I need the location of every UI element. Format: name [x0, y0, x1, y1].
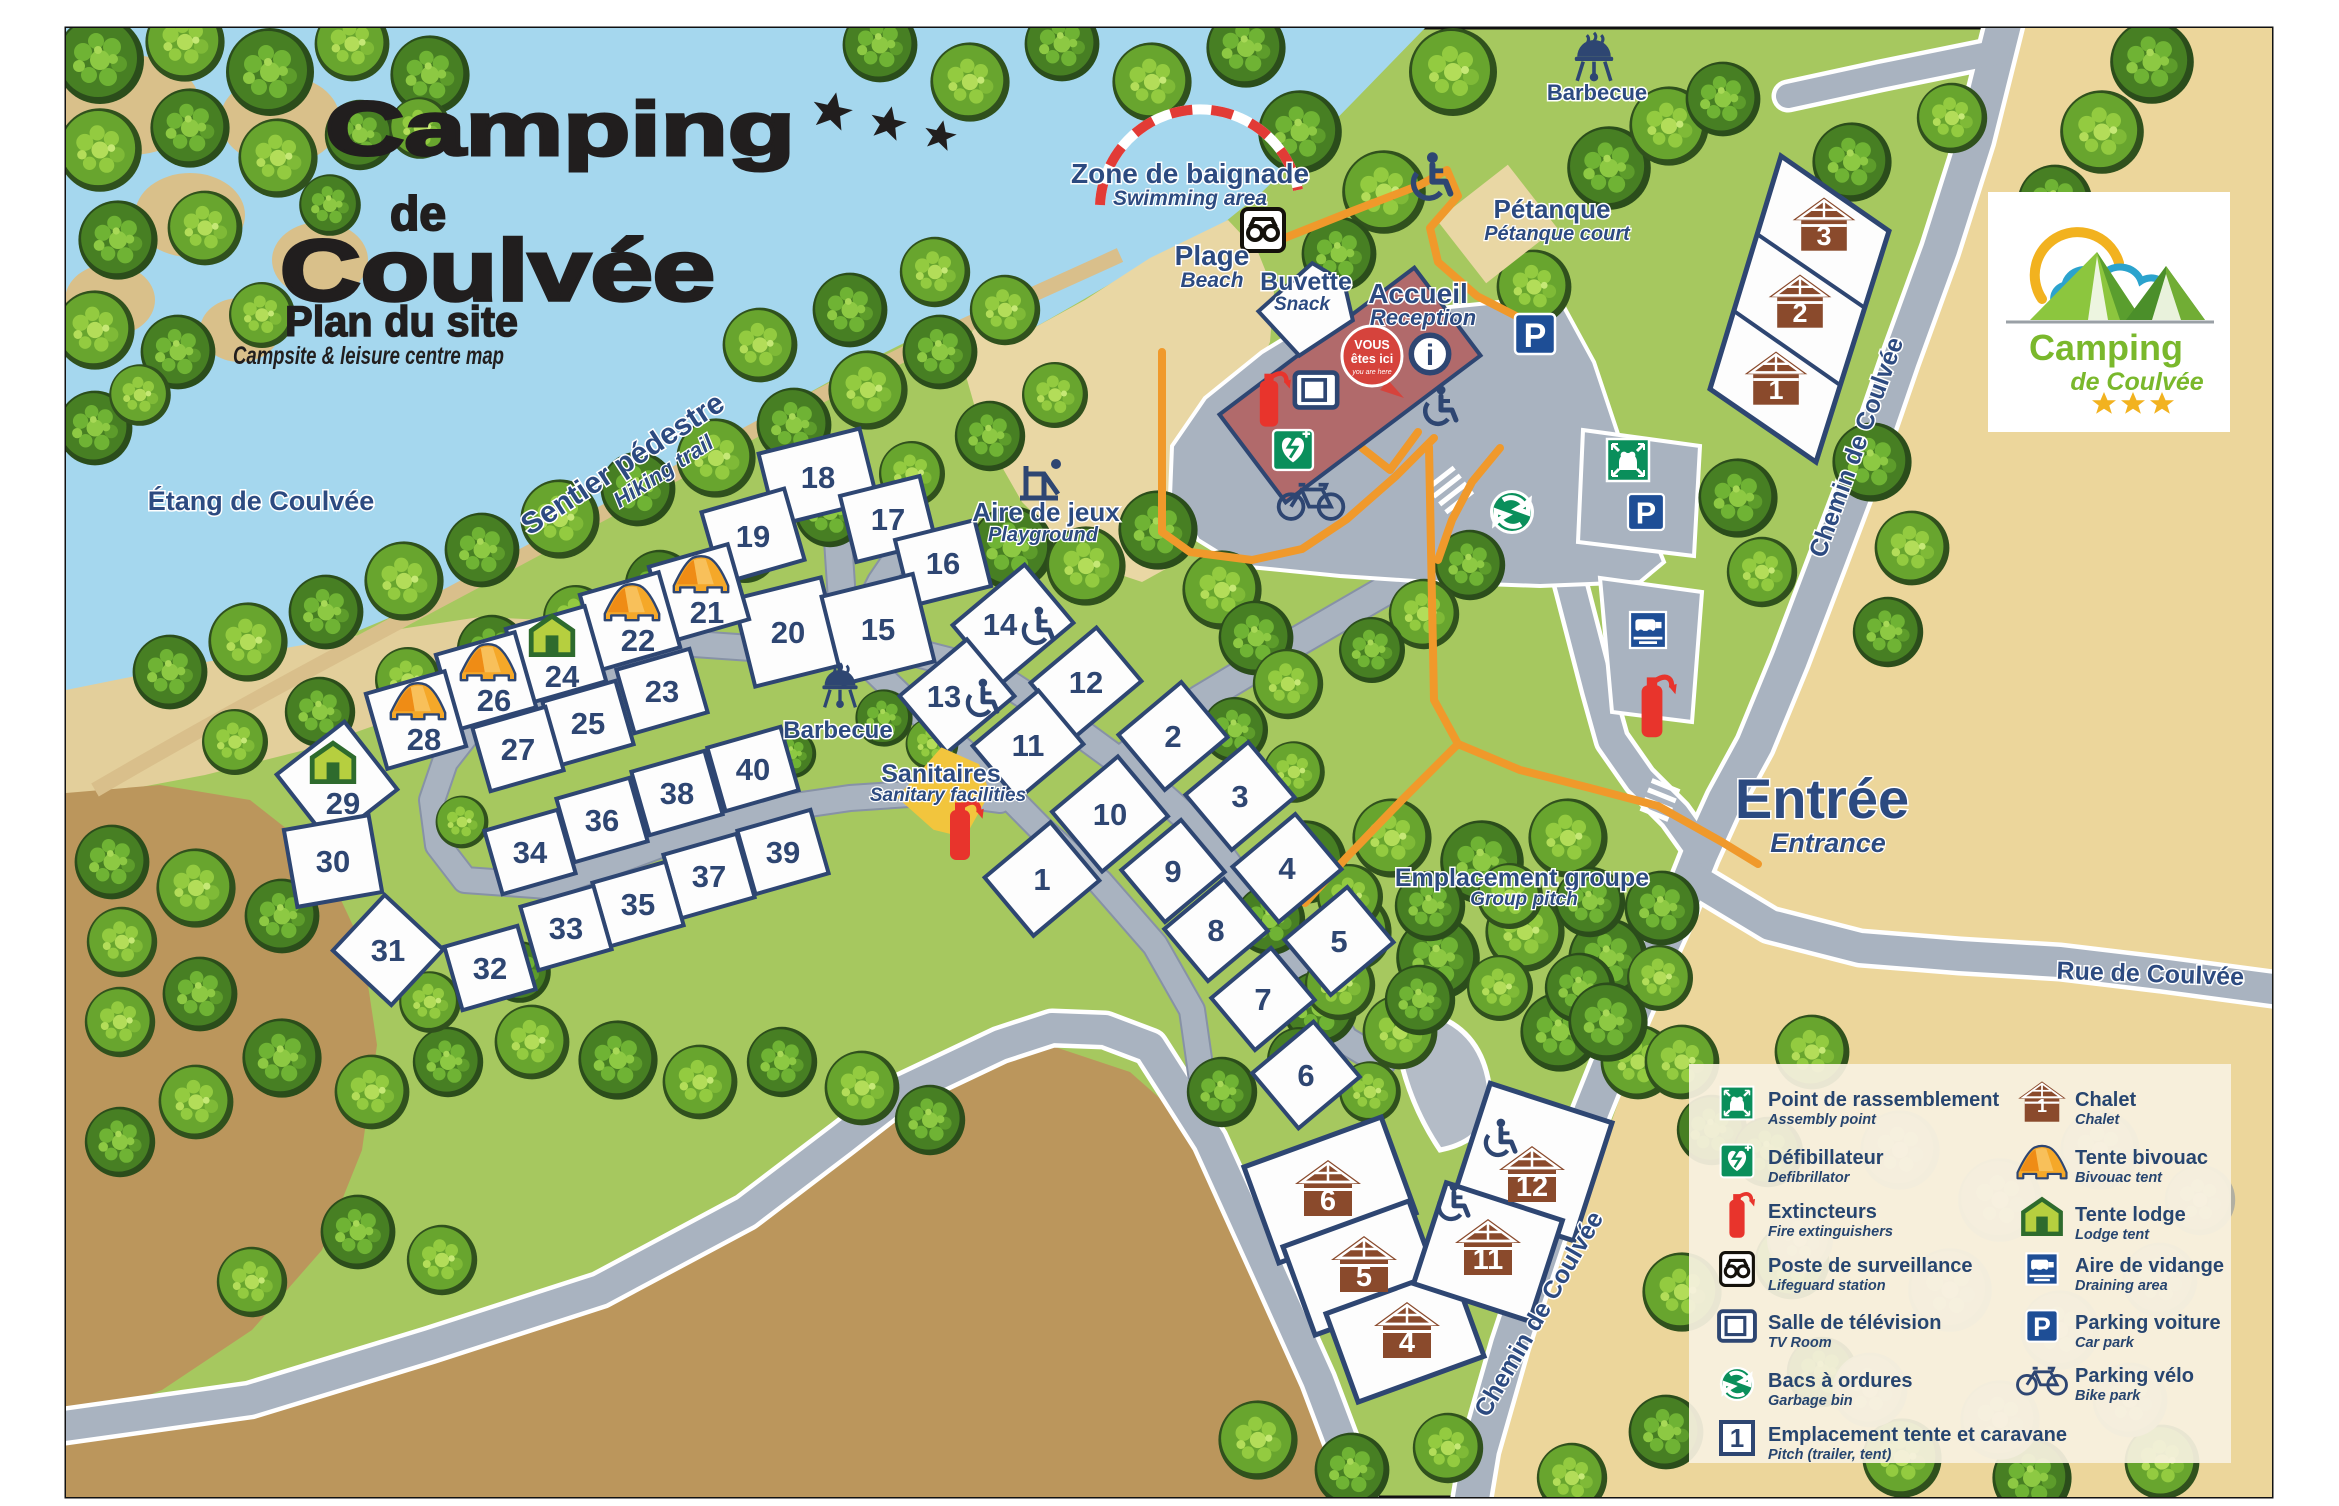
svg-text:Aire de jeux: Aire de jeux — [972, 497, 1120, 527]
svg-text:6: 6 — [1320, 1185, 1336, 1217]
svg-text:Poste de surveillance: Poste de surveillance — [1768, 1255, 1973, 1277]
svg-text:Buvette: Buvette — [1260, 268, 1352, 296]
svg-text:Sanitaires: Sanitaires — [881, 760, 1001, 788]
svg-text:Emplacement groupe: Emplacement groupe — [1395, 864, 1649, 892]
svg-text:Bike park: Bike park — [2075, 1388, 2141, 1404]
svg-text:14: 14 — [983, 607, 1018, 642]
svg-text:Bivouac tent: Bivouac tent — [2075, 1170, 2163, 1186]
svg-text:Entrée: Entrée — [1735, 767, 1909, 830]
svg-text:de Coulvée: de Coulvée — [2070, 368, 2203, 396]
svg-text:Swimming area: Swimming area — [1113, 187, 1267, 210]
svg-text:Aire de vidange: Aire de vidange — [2075, 1255, 2224, 1277]
svg-text:27: 27 — [501, 732, 535, 767]
svg-text:Tente bivouac: Tente bivouac — [2075, 1147, 2208, 1169]
svg-text:Garbage bin: Garbage bin — [1768, 1393, 1853, 1409]
svg-text:28: 28 — [407, 722, 441, 757]
svg-text:TV Room: TV Room — [1768, 1335, 1832, 1351]
svg-text:Lifeguard station: Lifeguard station — [1768, 1278, 1886, 1294]
svg-text:21: 21 — [690, 595, 724, 630]
svg-text:Pitch (trailer, tent): Pitch (trailer, tent) — [1768, 1447, 1891, 1463]
svg-text:32: 32 — [473, 951, 507, 986]
svg-text:1: 1 — [1033, 862, 1050, 897]
svg-text:Plage: Plage — [1175, 240, 1250, 271]
svg-text:VOUS: VOUS — [1354, 338, 1389, 352]
svg-text:10: 10 — [1093, 797, 1127, 832]
svg-text:Bacs à ordures: Bacs à ordures — [1768, 1370, 1913, 1392]
svg-text:2: 2 — [1164, 719, 1181, 754]
svg-text:37: 37 — [692, 859, 726, 894]
svg-text:30: 30 — [316, 844, 350, 879]
svg-text:40: 40 — [736, 752, 770, 787]
svg-text:25: 25 — [571, 706, 605, 741]
svg-text:Defibrillator: Defibrillator — [1768, 1170, 1851, 1186]
svg-text:6: 6 — [1297, 1058, 1314, 1093]
svg-text:15: 15 — [861, 612, 895, 647]
svg-text:Parking voiture: Parking voiture — [2075, 1312, 2221, 1334]
svg-text:2: 2 — [1792, 298, 1807, 328]
svg-text:5: 5 — [1330, 924, 1347, 959]
svg-text:Emplacement tente et caravane: Emplacement tente et caravane — [1768, 1424, 2067, 1446]
svg-text:11: 11 — [1473, 1244, 1504, 1276]
svg-text:31: 31 — [371, 933, 405, 968]
svg-text:Plan du site: Plan du site — [285, 298, 518, 346]
svg-text:you are here: you are here — [1351, 369, 1391, 376]
svg-text:3: 3 — [1816, 221, 1831, 251]
svg-text:4: 4 — [1278, 851, 1296, 886]
svg-text:16: 16 — [926, 546, 960, 581]
svg-text:Pétanque: Pétanque — [1493, 194, 1610, 224]
svg-text:Chalet: Chalet — [2075, 1089, 2136, 1111]
svg-text:Chalet: Chalet — [2075, 1112, 2120, 1128]
svg-text:Playground: Playground — [988, 524, 1099, 546]
svg-text:39: 39 — [766, 835, 800, 870]
svg-text:33: 33 — [549, 911, 583, 946]
svg-text:24: 24 — [545, 659, 580, 694]
svg-text:38: 38 — [660, 776, 694, 811]
svg-text:36: 36 — [585, 803, 619, 838]
svg-text:35: 35 — [621, 887, 655, 922]
svg-text:Lodge tent: Lodge tent — [2075, 1227, 2150, 1243]
svg-text:Point de rassemblement: Point de rassemblement — [1768, 1089, 2000, 1111]
svg-text:Tente lodge: Tente lodge — [2075, 1204, 2186, 1226]
svg-text:22: 22 — [621, 623, 655, 658]
svg-text:3: 3 — [1231, 779, 1248, 814]
svg-text:26: 26 — [477, 683, 511, 718]
svg-text:9: 9 — [1164, 854, 1181, 889]
svg-text:34: 34 — [513, 835, 548, 870]
svg-text:Pétanque court: Pétanque court — [1484, 223, 1631, 245]
svg-text:13: 13 — [927, 679, 961, 714]
svg-text:18: 18 — [801, 460, 835, 495]
svg-text:Extincteurs: Extincteurs — [1768, 1201, 1877, 1223]
svg-text:Car park: Car park — [2075, 1335, 2135, 1351]
svg-text:1: 1 — [2037, 1096, 2047, 1116]
svg-text:Barbecue: Barbecue — [783, 717, 892, 744]
svg-text:Zone de baignade: Zone de baignade — [1071, 158, 1309, 189]
svg-text:1: 1 — [1768, 375, 1783, 405]
svg-text:1: 1 — [1730, 1423, 1744, 1453]
svg-text:Reception: Reception — [1370, 305, 1476, 330]
svg-text:17: 17 — [871, 502, 905, 537]
svg-text:23: 23 — [645, 674, 679, 709]
svg-text:Snack: Snack — [1274, 294, 1331, 315]
svg-text:5: 5 — [1356, 1261, 1372, 1293]
svg-text:Étang de Coulvée: Étang de Coulvée — [148, 485, 375, 516]
svg-text:12: 12 — [1069, 665, 1103, 700]
svg-text:Beach: Beach — [1180, 269, 1243, 292]
svg-text:Fire extinguishers: Fire extinguishers — [1768, 1224, 1893, 1240]
svg-text:Campsite & leisure centre map: Campsite & leisure centre map — [233, 342, 504, 370]
svg-text:Camping: Camping — [2029, 327, 2183, 368]
svg-text:Group pitch: Group pitch — [1470, 889, 1578, 910]
svg-text:4: 4 — [1399, 1327, 1415, 1359]
svg-text:Défibillateur: Défibillateur — [1768, 1147, 1884, 1169]
svg-text:20: 20 — [771, 615, 805, 650]
svg-text:8: 8 — [1207, 913, 1224, 948]
svg-text:Parking vélo: Parking vélo — [2075, 1365, 2194, 1387]
svg-text:11: 11 — [1012, 728, 1045, 763]
svg-text:Sanitary facilities: Sanitary facilities — [870, 785, 1026, 806]
svg-text:12: 12 — [1516, 1171, 1548, 1203]
svg-text:Camping: Camping — [325, 87, 795, 172]
svg-text:Entrance: Entrance — [1770, 828, 1886, 858]
svg-text:19: 19 — [736, 519, 770, 554]
svg-text:êtes ici: êtes ici — [1351, 352, 1393, 366]
svg-text:Salle de télévision: Salle de télévision — [1768, 1312, 1941, 1334]
svg-text:Draining area: Draining area — [2075, 1278, 2168, 1294]
svg-text:7: 7 — [1254, 982, 1271, 1017]
svg-text:Barbecue: Barbecue — [1547, 80, 1647, 105]
svg-text:Assembly point: Assembly point — [1767, 1112, 1877, 1128]
